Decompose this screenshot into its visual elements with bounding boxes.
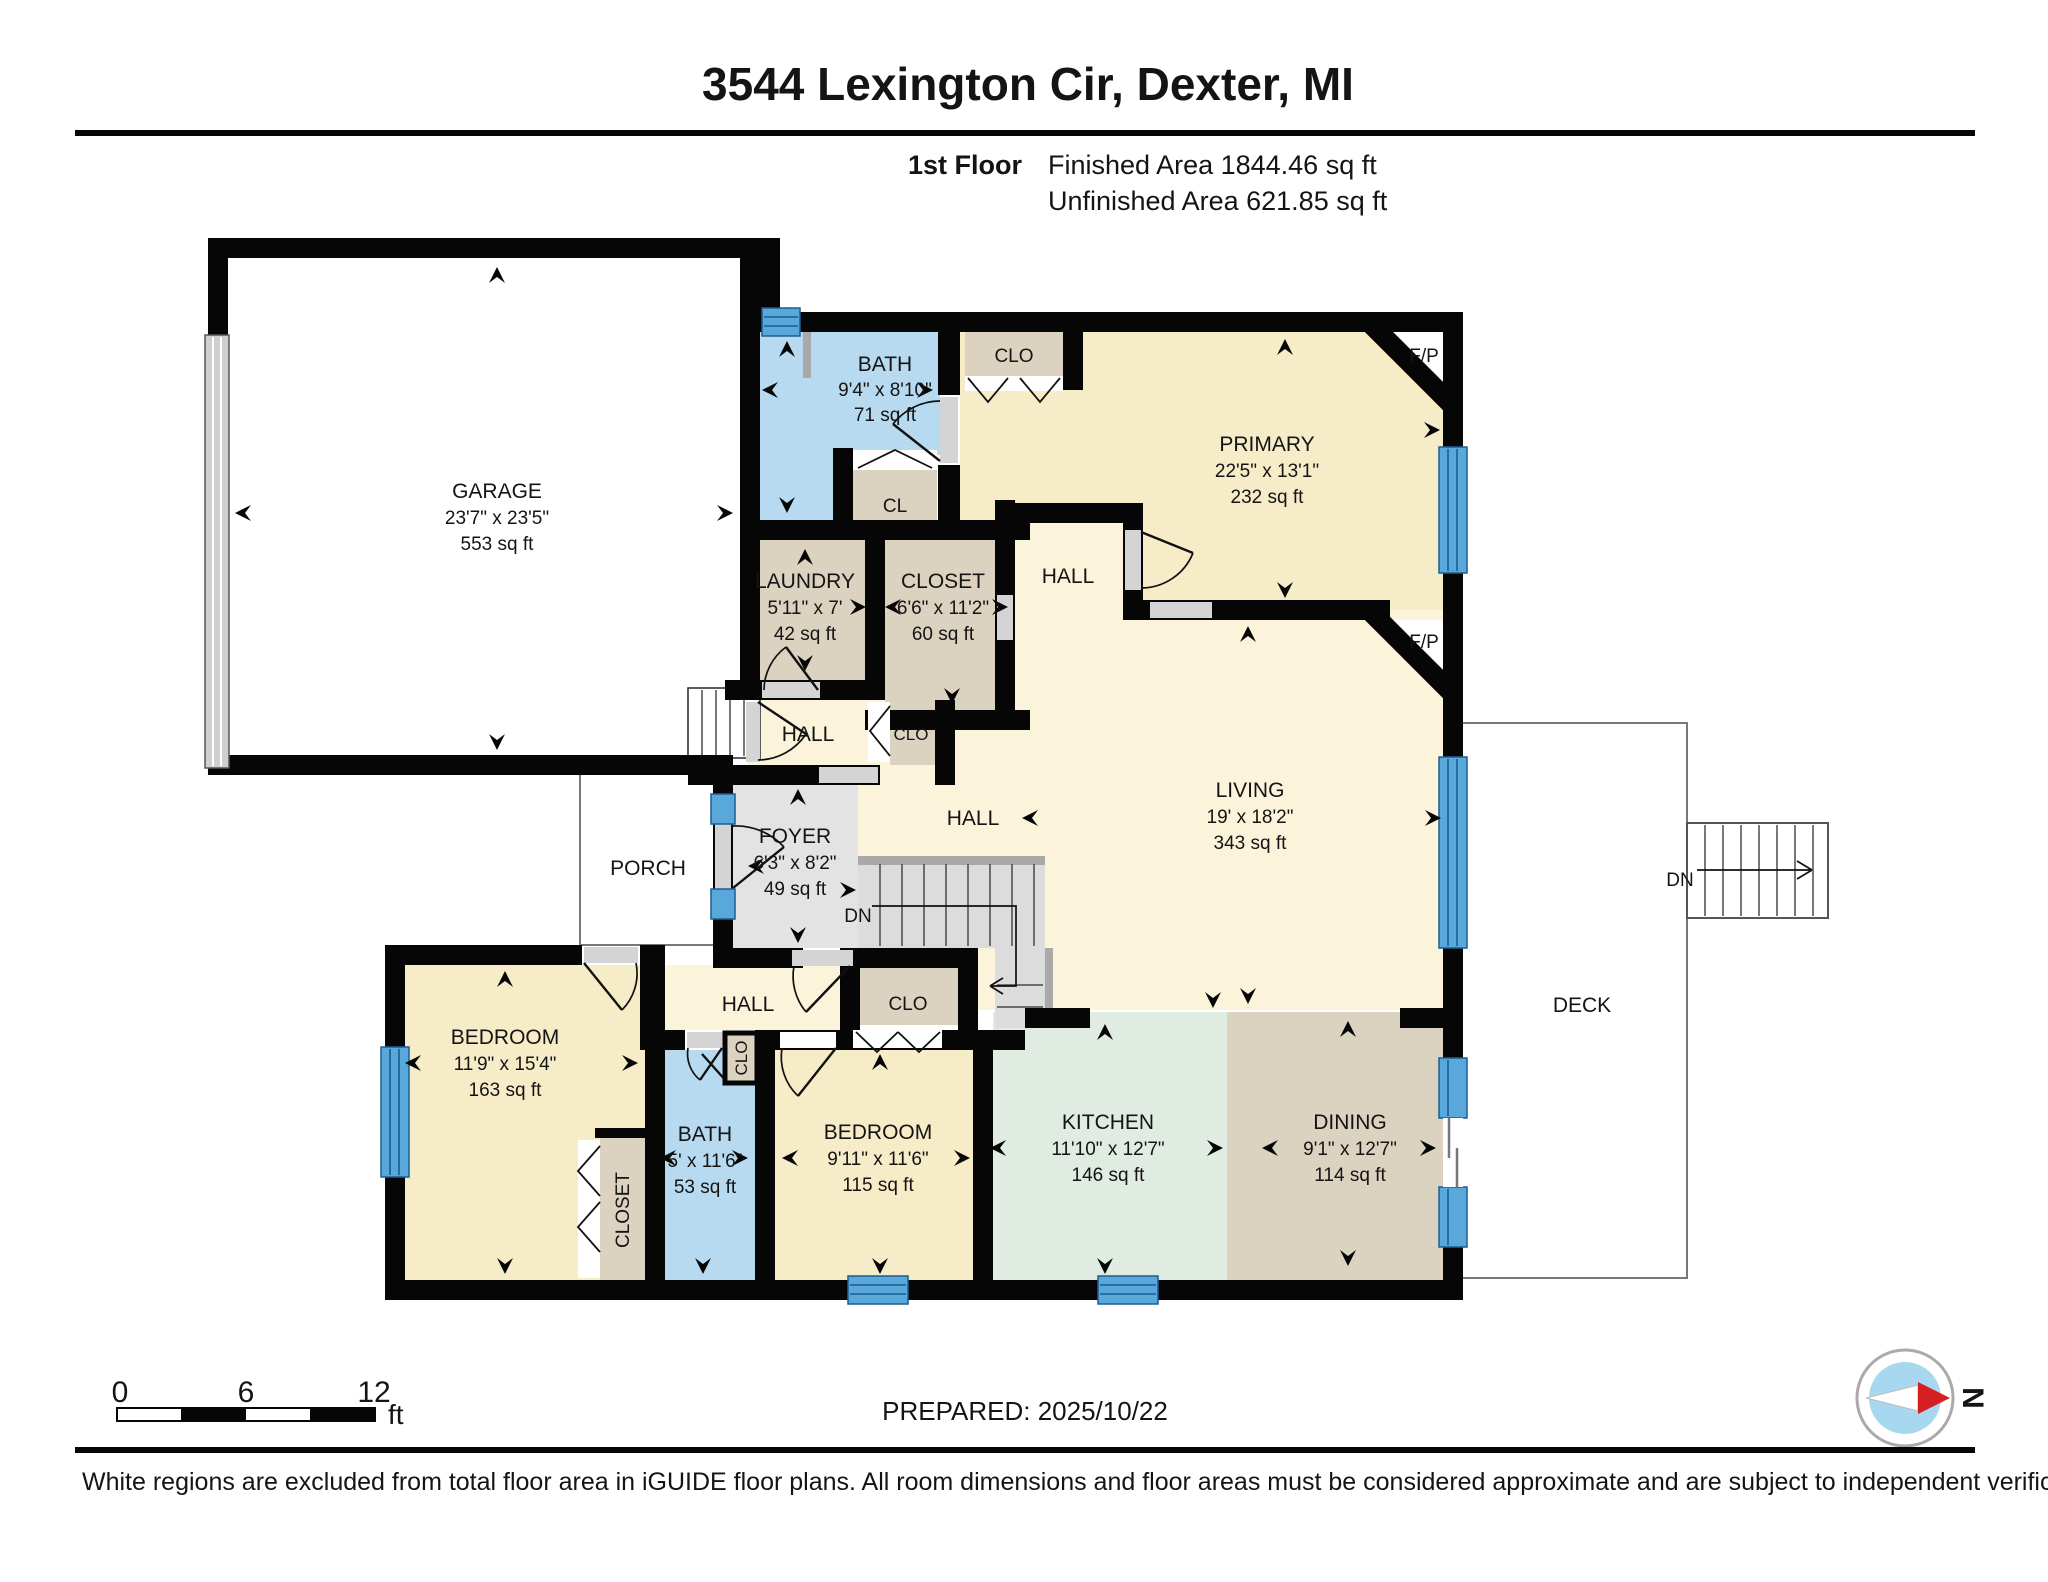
footer-divider [75,1447,1975,1453]
svg-text:343 sq ft: 343 sq ft [1214,833,1288,854]
svg-text:114 sq ft: 114 sq ft [1314,1165,1386,1186]
prepared-date: PREPARED: 2025/10/22 [882,1396,1168,1426]
svg-text:19' x 18'2": 19' x 18'2" [1207,807,1294,828]
header: 3544 Lexington Cir, Dexter, MI 1st Floor… [75,58,1975,216]
svg-text:42 sq ft: 42 sq ft [774,624,837,645]
svg-text:11'10" x 12'7": 11'10" x 12'7" [1051,1139,1164,1160]
deck-label: DECK [1553,994,1611,1017]
svg-text:6'3" x 8'2": 6'3" x 8'2" [753,853,836,874]
stairs-dn-label: DN [844,906,871,927]
deck [1463,723,1828,1278]
sliding-door [1443,1118,1463,1187]
svg-text:BEDROOM: BEDROOM [451,1026,560,1049]
svg-text:232 sq ft: 232 sq ft [1231,487,1305,508]
closet-bedroom1-label: CLOSET [613,1172,634,1248]
scale-12: 12 [357,1376,390,1409]
scale-6: 6 [238,1376,255,1409]
svg-text:GARAGE: GARAGE [452,480,542,503]
svg-text:49 sq ft: 49 sq ft [764,879,827,900]
footer-disclaimer: White regions are excluded from total fl… [82,1468,2048,1496]
garage-label: GARAGE23'7" x 23'5"553 sq ft [445,480,549,555]
living-label: LIVING19' x 18'2"343 sq ft [1207,779,1294,854]
svg-text:5'11" x 7': 5'11" x 7' [768,598,843,619]
finished-area: Finished Area 1844.46 sq ft [1048,150,1377,180]
scale-unit: ft [388,1399,404,1430]
svg-text:FOYER: FOYER [759,825,831,848]
room-bath1-fill-b [760,455,833,520]
svg-text:BEDROOM: BEDROOM [824,1121,933,1144]
svg-text:22'5" x 13'1": 22'5" x 13'1" [1215,461,1319,482]
fp-living-label: F/P [1409,632,1439,653]
clo-bath2-label: CLO [732,1041,751,1076]
shower-divider [803,332,811,378]
header-divider [75,130,1975,136]
hall-primary-label: HALL [1042,565,1095,588]
floor-plan-canvas: 3544 Lexington Cir, Dexter, MI 1st Floor… [0,0,2048,1582]
svg-text:BATH: BATH [678,1123,732,1146]
svg-text:9'1" x 12'7": 9'1" x 12'7" [1303,1139,1397,1160]
clo-bottom-label: CLO [888,994,927,1015]
foyer-label: FOYER6'3" x 8'2"49 sq ft [753,825,836,900]
svg-text:DINING: DINING [1313,1111,1387,1134]
svg-text:PRIMARY: PRIMARY [1219,433,1314,456]
svg-text:LAUNDRY: LAUNDRY [755,570,855,593]
svg-text:146 sq ft: 146 sq ft [1072,1165,1146,1186]
garage-door [205,335,229,768]
dining-label: DINING9'1" x 12'7"114 sq ft [1303,1111,1397,1186]
hall-small-label: HALL [782,723,835,746]
compass-north-label: N [1956,1387,1989,1409]
front-sidelight-lower [711,889,735,919]
bath2-label: BATH5' x 11'6"53 sq ft [668,1123,743,1198]
cl-label: CL [883,496,907,517]
svg-text:LIVING: LIVING [1216,779,1285,802]
svg-text:9'11" x 11'6": 9'11" x 11'6" [827,1149,928,1170]
clo-top-label: CLO [994,346,1033,367]
porch-label: PORCH [610,857,686,880]
svg-text:KITCHEN: KITCHEN [1062,1111,1154,1134]
svg-text:BATH: BATH [858,353,912,376]
hall-living-label: HALL [947,807,1000,830]
svg-text:115 sq ft: 115 sq ft [842,1175,914,1196]
scale-bar: 0 6 12 ft [112,1376,404,1430]
svg-text:6'6" x 11'2": 6'6" x 11'2" [897,598,989,619]
svg-text:11'9" x 15'4": 11'9" x 15'4" [454,1054,557,1075]
svg-text:553 sq ft: 553 sq ft [461,534,535,555]
unfinished-area: Unfinished Area 621.85 sq ft [1048,186,1388,216]
floor-label: 1st Floor [908,150,1023,180]
svg-text:5' x 11'6": 5' x 11'6" [668,1151,743,1172]
svg-text:CLOSET: CLOSET [901,570,985,593]
svg-text:163 sq ft: 163 sq ft [469,1080,543,1101]
page-title: 3544 Lexington Cir, Dexter, MI [702,58,1354,110]
clo-small-label: CLO [894,725,929,744]
front-sidelight-upper [711,794,735,824]
scale-0: 0 [112,1376,129,1409]
compass-icon: N [1857,1350,1989,1446]
deck-dn-label: DN [1666,870,1693,891]
fp-primary-label: F/P [1409,346,1439,367]
svg-text:53 sq ft: 53 sq ft [674,1177,737,1198]
svg-text:9'4" x 8'10": 9'4" x 8'10" [838,380,932,401]
hall-bottom-label: HALL [722,993,775,1016]
svg-text:23'7" x 23'5": 23'7" x 23'5" [445,508,549,529]
svg-text:71 sq ft: 71 sq ft [854,405,917,426]
svg-text:60 sq ft: 60 sq ft [912,624,975,645]
